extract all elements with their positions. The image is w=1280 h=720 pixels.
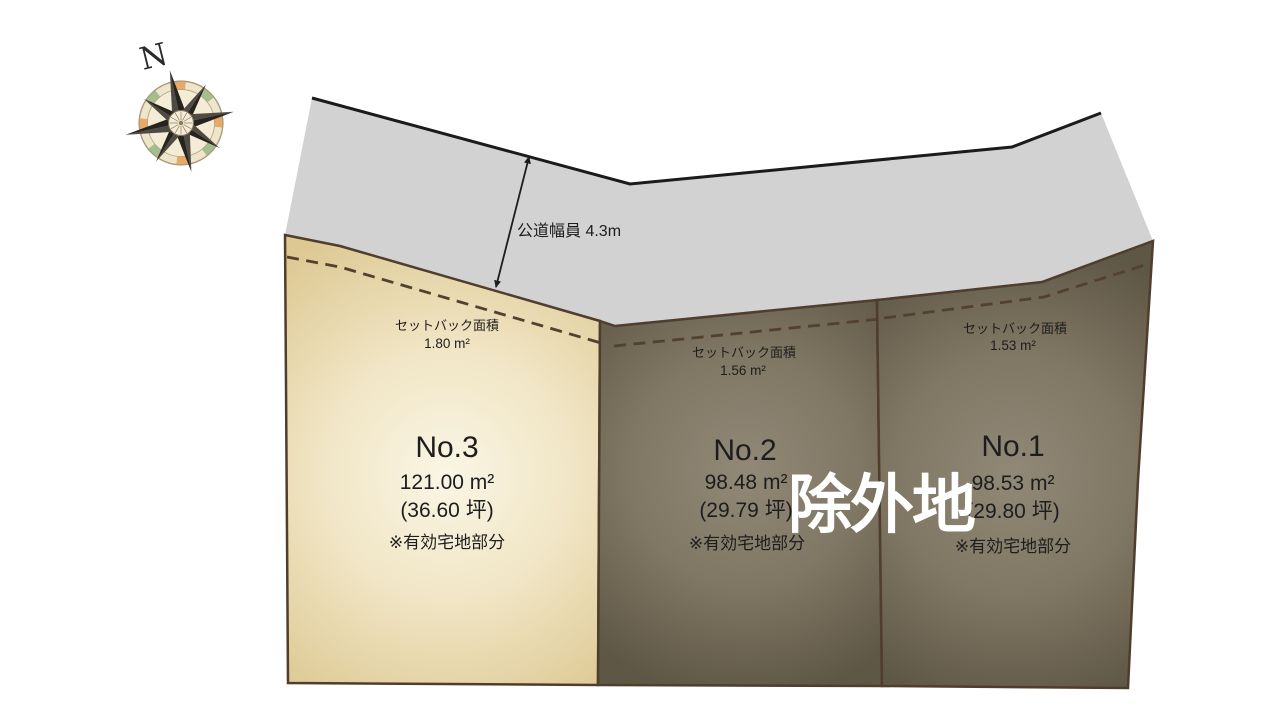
road-width-label: 公道幅員 4.3m [517,222,621,240]
setback-area-label: セットバック面積 [395,318,499,333]
plot-area: 121.00 m² [400,471,495,494]
compass-north-label: N [136,36,171,77]
site-plan-diagram: セットバック面積 1.80 m² No.3 121.00 m² (36.60 坪… [0,0,1280,720]
plot-area: 98.48 m² [705,471,788,494]
plot-no1-group: セットバック面積 1.53 m² No.1 98.53 m² (29.80 坪)… [877,241,1153,688]
compass-rose-icon: N [114,36,244,183]
plot-name: No.2 [713,434,776,467]
plot-area: 98.53 m² [972,472,1055,495]
plot-name: No.1 [981,430,1044,463]
setback-area-label: セットバック面積 [692,345,796,360]
excluded-area-label: 除外地 [788,469,975,541]
site-plan-canvas: セットバック面積 1.80 m² No.3 121.00 m² (36.60 坪… [0,0,1280,720]
plot-tsubo: (29.80 坪) [966,500,1059,523]
setback-area-label: セットバック面積 [963,321,1067,336]
setback-area-value: 1.53 m² [990,338,1036,353]
plot-name: No.3 [415,431,478,464]
plot-tsubo: (36.60 坪) [400,499,493,522]
plot-tsubo: (29.79 坪) [699,499,792,522]
plot-no1-area [877,241,1153,688]
setback-area-value: 1.80 m² [424,336,470,351]
plot-note: ※有効宅地部分 [389,533,505,552]
setback-area-value: 1.56 m² [720,363,766,378]
